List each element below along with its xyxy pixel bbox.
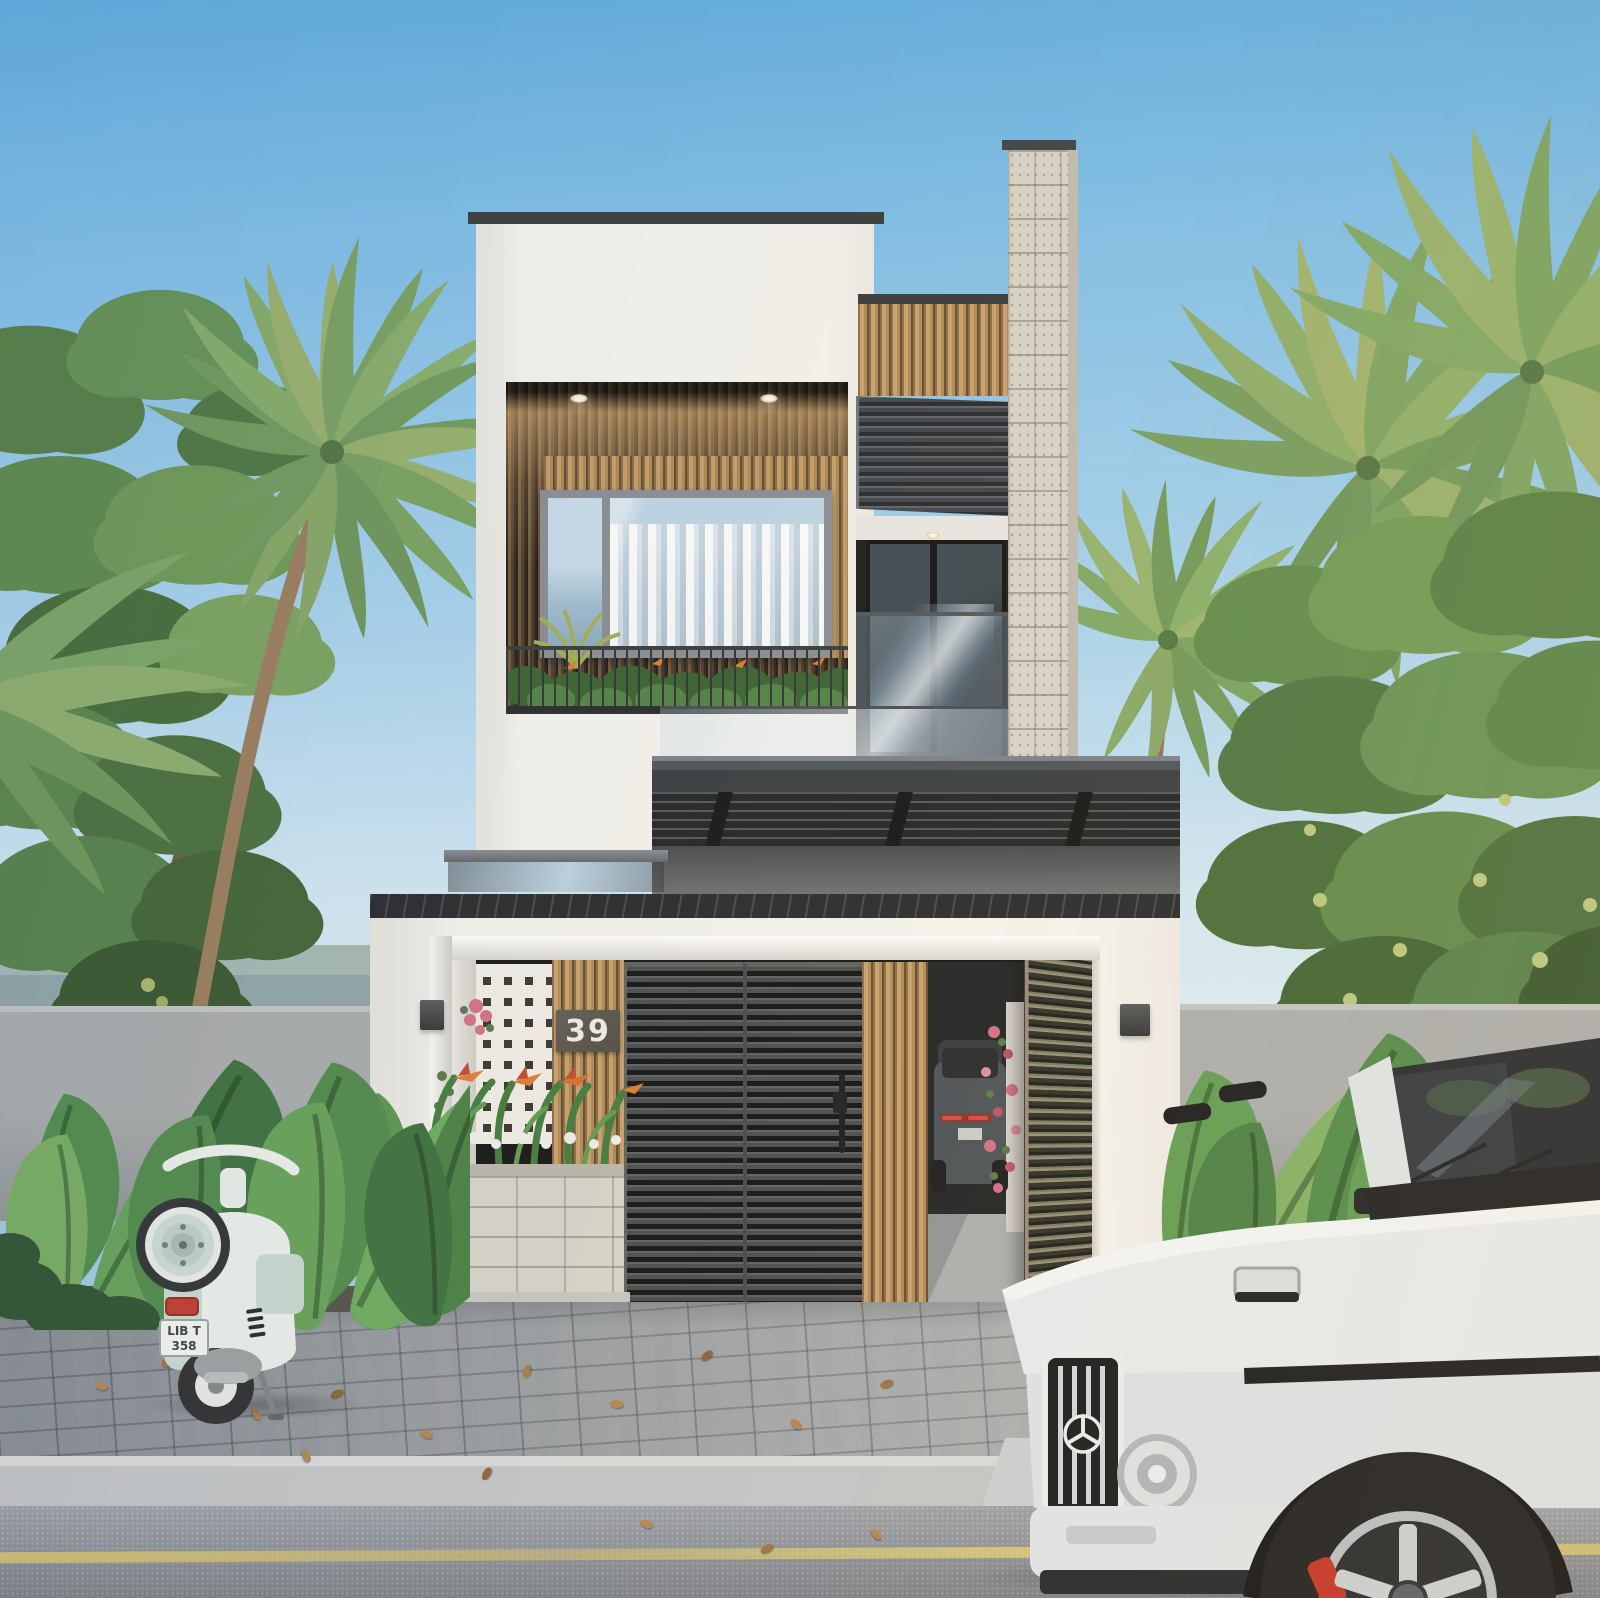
scooter-spare-wheel: [136, 1198, 230, 1292]
glass-canopy-glass: [448, 862, 664, 892]
pergola-beam-3: [1064, 792, 1094, 846]
gate-right-panel[interactable]: [743, 962, 869, 1302]
carport-pergola-fascia: [652, 756, 1180, 792]
gate-lock-box[interactable]: [833, 1093, 847, 1113]
plate-line-2: 358: [171, 1339, 196, 1353]
suv-headlight: [1117, 1434, 1197, 1514]
glass-canopy: [444, 850, 668, 894]
scooter-kickstand: [258, 1366, 284, 1420]
pergola-beam-1: [704, 792, 734, 846]
terrace-downlight: [926, 532, 940, 539]
marble-coping: [370, 894, 1180, 918]
pergola-beam-2: [884, 792, 914, 846]
mercedes-star-icon: [1065, 1416, 1101, 1452]
stone-wall-side: [1068, 150, 1078, 794]
scooter-glovebox: [256, 1254, 304, 1314]
scooter[interactable]: LIB T 358: [108, 1128, 358, 1428]
suv-grille: [1042, 1352, 1124, 1518]
recess-downlight-2: [760, 394, 778, 403]
suv-hood-vents: [1160, 1080, 1269, 1125]
suv[interactable]: [946, 1038, 1600, 1598]
upper-wood-band: [858, 304, 1008, 396]
shadow-under-pergola: [652, 846, 1180, 894]
scooter-handlebar: [168, 1150, 294, 1170]
scooter-steering-column: [220, 1168, 246, 1208]
scooter-taillight: [166, 1298, 198, 1315]
gate-handle[interactable]: [839, 1073, 845, 1153]
louvered-awning: [856, 396, 1013, 516]
scooter-license-plate: LIB T 358: [160, 1320, 208, 1356]
balcony-railing: [506, 646, 848, 714]
suv-turn-signal: [1235, 1268, 1299, 1302]
carport-pergola-slats: [652, 792, 1180, 846]
roof-edge-left: [468, 212, 884, 224]
terrace-front-glass-rail: [660, 706, 1008, 761]
glass-canopy-fascia: [444, 850, 668, 862]
upper-window-recess: [506, 382, 848, 714]
stone-feature-wall: [1008, 150, 1068, 794]
scooter-exhaust: [204, 1372, 248, 1383]
stone-wall-cap: [1002, 140, 1076, 150]
plate-line-1: LIB T: [167, 1324, 201, 1338]
wood-slat-column-right: [862, 962, 928, 1302]
exterior-render-scene: 39: [0, 0, 1600, 1598]
recess-downlight-1: [570, 394, 588, 403]
portal-top-reveal: [452, 936, 1100, 960]
